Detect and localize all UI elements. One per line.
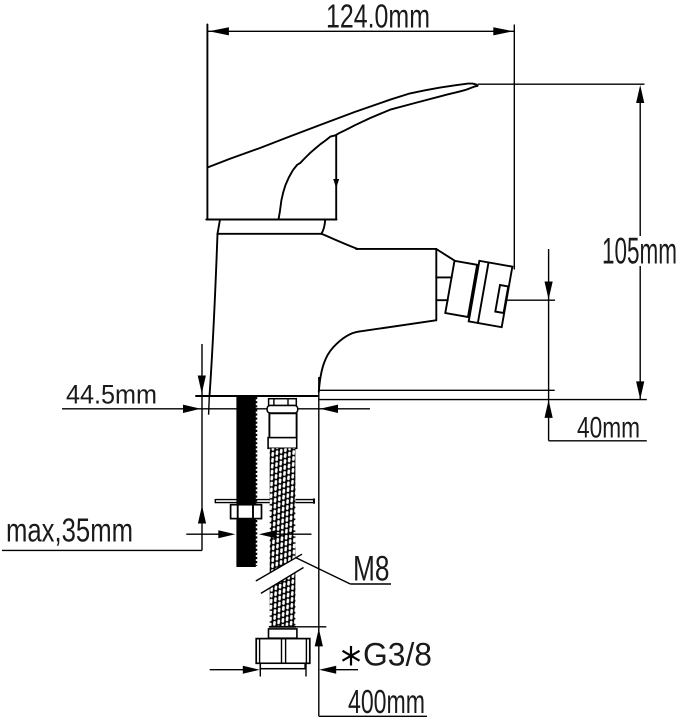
svg-text:40mm: 40mm: [577, 412, 640, 445]
svg-text:400mm: 400mm: [348, 683, 425, 720]
svg-text:105mm: 105mm: [602, 231, 677, 272]
svg-text:G3/8: G3/8: [363, 637, 432, 673]
svg-text:max,35mm: max,35mm: [6, 512, 133, 549]
svg-text:124.0mm: 124.0mm: [326, 0, 430, 35]
svg-text:M8: M8: [353, 550, 390, 589]
svg-text:44.5mm: 44.5mm: [66, 380, 157, 410]
